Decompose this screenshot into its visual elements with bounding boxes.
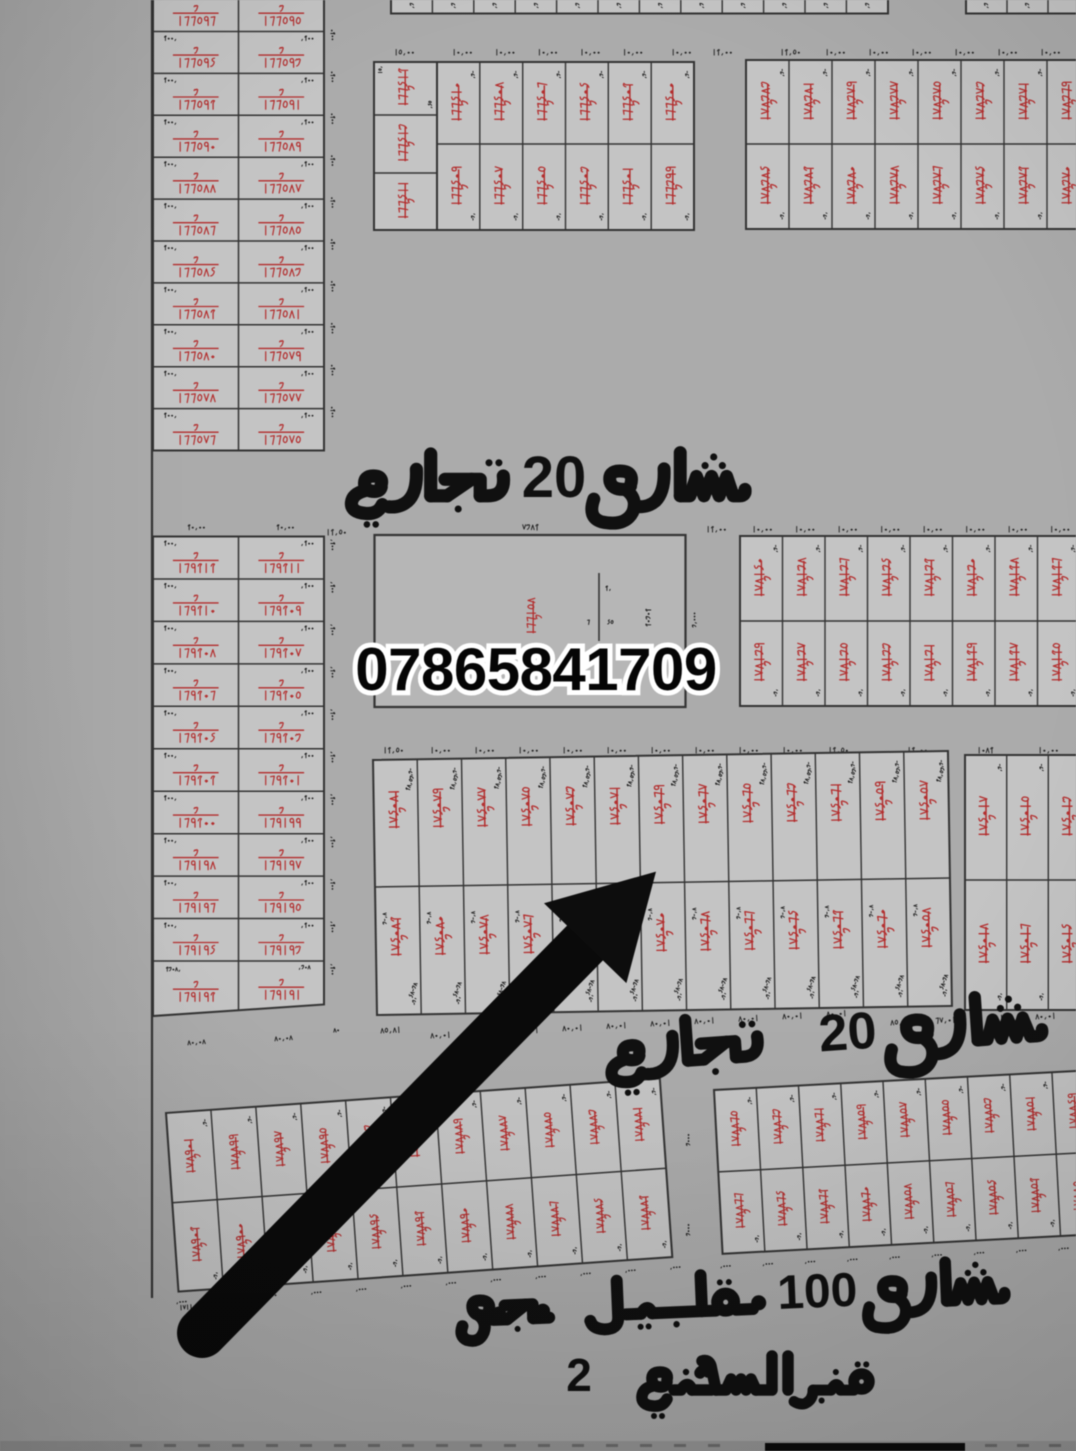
svg-text:100: 100 xyxy=(776,1264,858,1320)
svg-text:07865841709: 07865841709 xyxy=(355,636,717,703)
svg-text:20: 20 xyxy=(522,445,587,510)
svg-text:20: 20 xyxy=(817,1002,879,1064)
svg-text:2: 2 xyxy=(566,1349,592,1401)
